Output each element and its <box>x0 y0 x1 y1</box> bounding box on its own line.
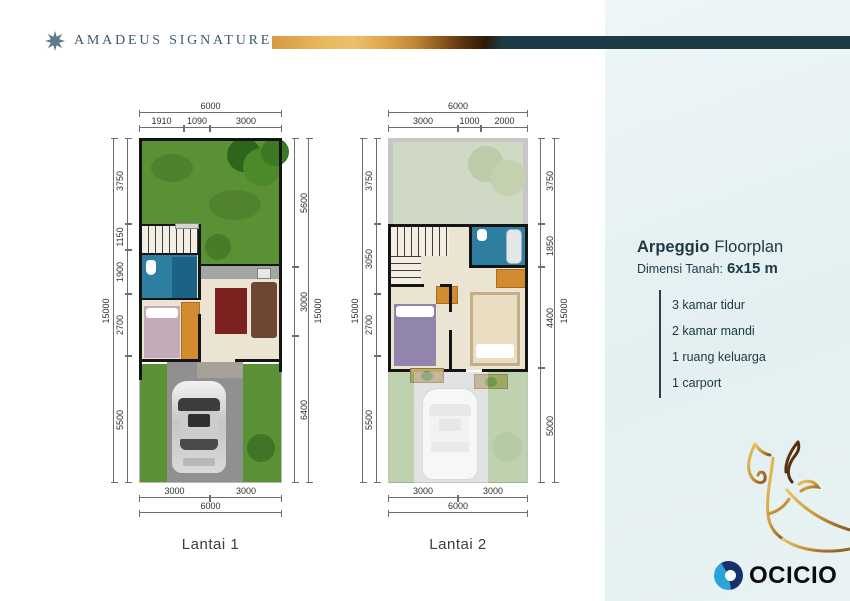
dim-label: 6000 <box>200 101 220 111</box>
plan1-top-total-dim: 6000 <box>139 112 282 113</box>
wall <box>449 330 452 372</box>
front-grass <box>488 372 527 483</box>
deer-line-art-icon <box>703 438 850 568</box>
wall <box>388 224 528 227</box>
dim-label: 15000 <box>101 298 111 323</box>
bush-icon <box>492 432 522 462</box>
dim-label: 3000 <box>236 486 256 496</box>
wall <box>198 314 201 362</box>
plan1-bottom-total-dim: 6000 <box>139 512 282 513</box>
bush-icon <box>205 234 231 260</box>
plan1-left-total-dim: 15000 <box>113 138 114 483</box>
dim-label: 1090 <box>187 116 207 126</box>
snowflake-medallion-icon <box>44 30 66 52</box>
dim-label: 1900 <box>115 262 125 282</box>
feature-list: 3 kamar tidur 2 kamar mandi 1 ruang kelu… <box>659 290 766 398</box>
window <box>175 223 199 229</box>
pillows <box>396 306 434 317</box>
plan2-top-seg-dim: 3000 <box>388 127 458 128</box>
stairs <box>391 226 449 256</box>
plan2-top-total-dim: 6000 <box>388 112 528 113</box>
plan2-right-seg-dim: 4400 <box>540 267 541 368</box>
plan1-left-seg-dim: 1150 <box>127 224 128 250</box>
faded-tree-icon <box>490 160 526 196</box>
plan2-bottom-seg-dim: 3000 <box>388 497 458 498</box>
terrace <box>197 362 243 378</box>
land-dimension-label: Dimensi Tanah: <box>637 262 723 276</box>
car-windshield <box>178 398 220 411</box>
dim-label: 3000 <box>483 486 503 496</box>
pillows <box>146 308 178 318</box>
rug <box>215 288 247 334</box>
dim-label: 5500 <box>115 409 125 429</box>
feature-item: 1 ruang keluarga <box>672 344 766 370</box>
car-rear-window <box>180 439 218 450</box>
dim-label: 2700 <box>364 315 374 335</box>
sink <box>257 268 271 279</box>
sofa <box>251 282 277 338</box>
plan1-bottom-seg-dim: 3000 <box>210 497 282 498</box>
feature-item: 1 carport <box>672 370 766 396</box>
page: AMADEUS SIGNATURE <box>0 0 850 601</box>
plan1-drawing <box>139 138 282 483</box>
dim-label: 1150 <box>115 227 125 246</box>
plan2-drawing <box>388 138 528 483</box>
wall <box>388 284 424 287</box>
land-dimension: Dimensi Tanah:6x15 m <box>637 260 778 277</box>
dim-label: 15000 <box>559 298 569 323</box>
feature-item: 3 kamar tidur <box>672 292 766 318</box>
wall <box>139 138 282 141</box>
plan1-right-seg-dim: 6400 <box>294 336 295 483</box>
stairs <box>142 226 200 255</box>
plan2-right-seg-dim: 3750 <box>540 138 541 224</box>
front-grass <box>389 372 414 483</box>
ghost-car <box>422 388 478 480</box>
grass-patch <box>209 190 261 220</box>
plan2-left-total-dim: 15000 <box>362 138 363 483</box>
dim-label: 1000 <box>459 116 479 126</box>
plan1-left-seg-dim: 5500 <box>127 356 128 483</box>
dim-label: 3000 <box>413 116 433 126</box>
plan2-right-total-dim: 15000 <box>554 138 555 483</box>
car-trunk <box>183 458 215 466</box>
header-gradient-bar <box>272 36 850 49</box>
plan-title: ArpeggioFloorplan <box>637 238 783 257</box>
dim-label: 3050 <box>364 249 374 269</box>
plan2-top-seg-dim: 1000 <box>458 127 481 128</box>
ghost-ground-floor <box>388 372 528 483</box>
plan1-top-seg-dim: 1090 <box>184 127 210 128</box>
ocicio-eye-icon <box>714 561 743 590</box>
wall <box>142 298 198 300</box>
car-rear-window <box>431 442 469 452</box>
plan2-right-seg-dim: 5000 <box>540 368 541 483</box>
desk <box>436 286 458 304</box>
dim-label: 3750 <box>364 171 374 191</box>
wall <box>279 362 282 372</box>
wall <box>139 362 142 380</box>
dim-label: 2000 <box>494 116 514 126</box>
wall <box>142 253 198 255</box>
plan2-right-seg-dim: 1850 <box>540 224 541 267</box>
wall <box>469 226 472 267</box>
wall <box>198 224 201 300</box>
brand-name: AMADEUS SIGNATURE <box>74 33 272 49</box>
wall <box>200 264 282 266</box>
wall <box>469 265 528 268</box>
plan1-top-seg-dim: 3000 <box>210 127 282 128</box>
plan2-left-seg-dim: 5500 <box>376 356 377 483</box>
car-sunroof <box>439 419 461 431</box>
land-dimension-value: 6x15 m <box>727 260 778 277</box>
dim-label: 6000 <box>448 501 468 511</box>
toilet <box>146 260 156 275</box>
bush-icon <box>247 434 275 462</box>
plan2-label: Lantai 2 <box>388 536 528 553</box>
plan2-left-seg-dim: 3750 <box>376 138 377 224</box>
plan1-left-seg-dim: 3750 <box>127 138 128 224</box>
plan1-left-seg-dim: 1900 <box>127 250 128 294</box>
wardrobe <box>496 269 527 288</box>
feature-item: 2 kamar mandi <box>672 318 766 344</box>
plan1-right-seg-dim: 3000 <box>294 267 295 336</box>
ocicio-wordmark: OCICIO <box>749 562 837 590</box>
wall <box>449 284 452 312</box>
plan2-left-seg-dim: 2700 <box>376 294 377 356</box>
shower <box>172 257 197 298</box>
dim-label: 15000 <box>313 298 323 323</box>
wall <box>139 138 142 362</box>
wall <box>525 224 528 372</box>
dim-label: 3000 <box>164 486 184 496</box>
car <box>171 380 227 474</box>
plan1-left-seg-dim: 2700 <box>127 294 128 356</box>
ocicio-logo: OCICIO <box>714 561 837 590</box>
plan1-bottom-seg-dim: 3000 <box>139 497 210 498</box>
dim-label: 3000 <box>236 116 256 126</box>
plan2-left-seg-dim: 3050 <box>376 224 377 294</box>
plan1-top-seg-dim: 1910 <box>139 127 184 128</box>
dim-label: 3750 <box>115 171 125 191</box>
plan2-bottom-total-dim: 6000 <box>388 512 528 513</box>
dim-label: 3000 <box>413 486 433 496</box>
plan1-right-seg-dim: 5600 <box>294 138 295 267</box>
stairs <box>391 256 421 284</box>
wall <box>388 224 391 372</box>
bathtub <box>506 229 522 264</box>
plan1-label: Lantai 1 <box>139 536 282 553</box>
dim-label: 5500 <box>364 409 374 429</box>
dim-label: 6000 <box>200 501 220 511</box>
dim-label: 6000 <box>448 101 468 111</box>
plan2-top-seg-dim: 2000 <box>481 127 528 128</box>
plan2-bottom-seg-dim: 3000 <box>458 497 528 498</box>
toilet <box>477 229 487 241</box>
plan1-right-total-dim: 15000 <box>308 138 309 483</box>
pillows <box>476 344 514 358</box>
grass-patch <box>151 154 193 182</box>
plan-title-suffix: Floorplan <box>714 238 783 256</box>
dim-label: 15000 <box>350 298 360 323</box>
brand-header: AMADEUS SIGNATURE <box>44 30 272 52</box>
front-grass <box>243 364 281 482</box>
tree-icon <box>261 138 289 166</box>
car-sunroof <box>188 414 210 427</box>
plan-title-name: Arpeggio <box>637 238 709 256</box>
dim-label: 1910 <box>151 116 171 126</box>
wall <box>279 138 282 362</box>
front-grass <box>140 364 167 482</box>
dim-label: 2700 <box>115 315 125 335</box>
car-windshield <box>429 404 471 416</box>
